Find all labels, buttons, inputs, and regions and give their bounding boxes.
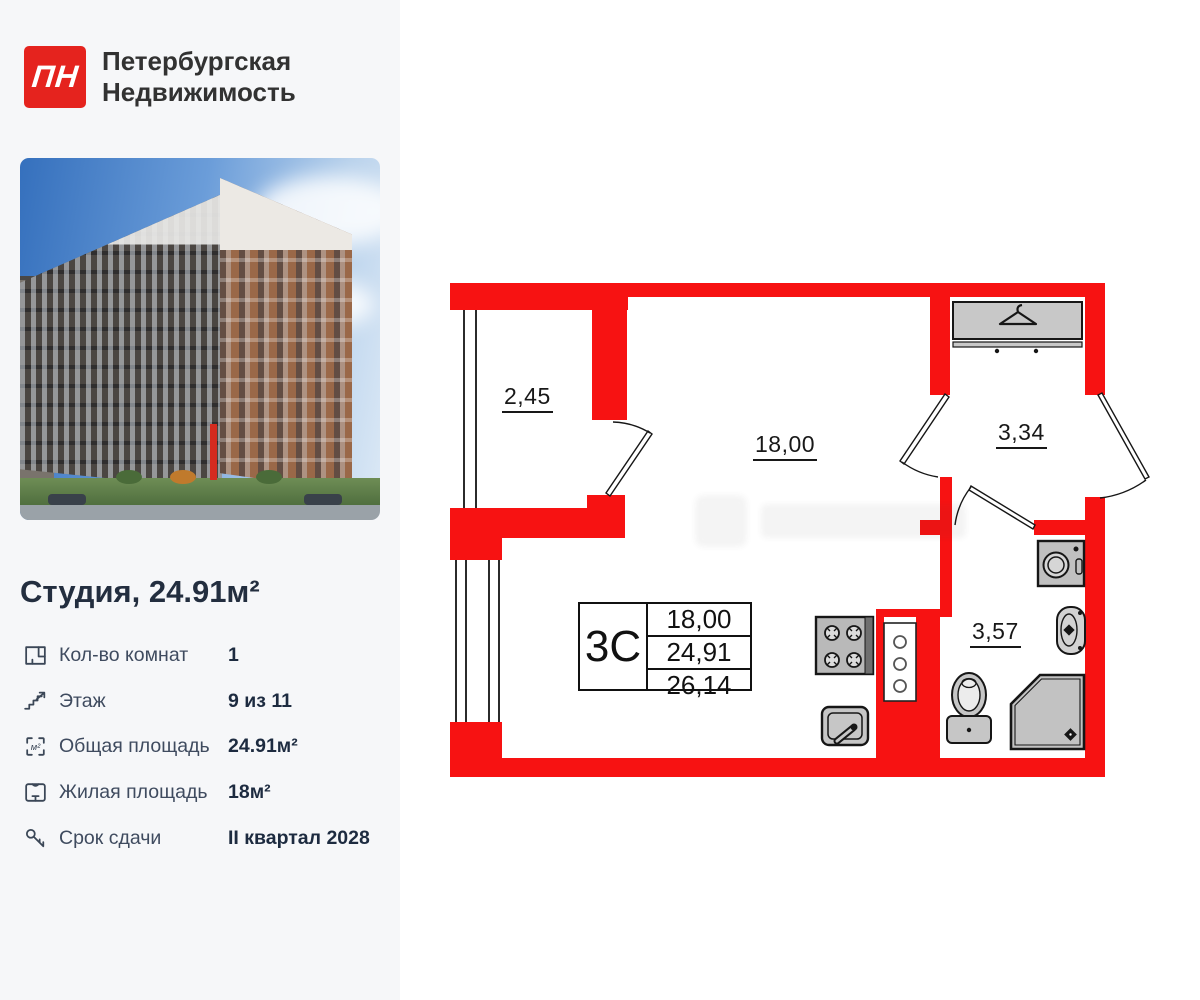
plan-area-living: 18,00 [648, 604, 750, 635]
balcony-door [606, 422, 652, 496]
detail-row-completion: Срок сдачи II квартал 2028 [22, 823, 382, 853]
detail-row-floor: Этаж 9 из 11 [22, 686, 382, 716]
balcony-glazing-window [463, 310, 477, 508]
living-area-icon [22, 779, 49, 806]
company-name: Петербургская Недвижимость [102, 46, 296, 107]
washing-machine [1038, 541, 1084, 586]
listing-card: ПН Петербургская Недвижимость Студия, [0, 0, 1200, 1000]
wall-segment [930, 297, 950, 395]
detail-label: Этаж [59, 690, 106, 713]
wall-segment [916, 617, 940, 777]
wall-segment [592, 310, 627, 420]
hanger-icon [1000, 305, 1036, 324]
shower-cabin [1011, 675, 1084, 749]
detail-label: Жилая площадь [59, 781, 208, 804]
wall-segment [1085, 497, 1105, 777]
left-panel: ПН Петербургская Недвижимость Студия, [0, 0, 400, 1000]
bathroom-sink [1057, 607, 1085, 654]
watermark-text [761, 504, 966, 538]
room-area-label-bath: 3,57 [970, 618, 1021, 648]
kitchen-sink [822, 707, 868, 745]
wall-segment [876, 617, 884, 777]
ventilation-shaft [884, 623, 916, 701]
plan-info-table: 3С 18,00 24,91 26,14 [578, 602, 752, 691]
room-window [488, 560, 500, 722]
brand-header[interactable]: ПН Петербургская Недвижимость [24, 46, 296, 108]
room-window [455, 560, 467, 722]
photo-bush [170, 470, 196, 484]
detail-label: Кол-во комнат [59, 644, 188, 667]
room-area-label-balcony: 2,45 [502, 383, 553, 413]
wall-segment [628, 283, 1105, 297]
detail-value: II квартал 2028 [228, 827, 370, 850]
photo-entrance-sign [210, 424, 217, 480]
apartment-title: Студия, 24.91м² [20, 574, 260, 610]
entrance-door [1098, 393, 1149, 498]
rooms-plan-icon [22, 642, 49, 669]
watermark-logo [695, 495, 747, 547]
logo-monogram: ПН [30, 59, 80, 95]
stove [816, 617, 873, 674]
room-area-label-living: 18,00 [753, 431, 817, 461]
detail-label: Общая площадь [59, 735, 210, 758]
wall-segment [884, 701, 916, 777]
total-area-icon: м² [22, 733, 49, 760]
plan-area-total: 24,91 [648, 635, 750, 668]
plan-area-reduced: 26,14 [648, 668, 750, 701]
wall-segment [1085, 283, 1105, 395]
detail-label: Срок сдачи [59, 827, 161, 850]
company-name-line2: Недвижимость [102, 77, 296, 108]
wall-segment [450, 508, 502, 560]
plan-type-label: 3С [580, 604, 648, 689]
building-photo[interactable] [20, 158, 380, 520]
detail-row-living-area: Жилая площадь 18м² [22, 777, 382, 807]
detail-value: 18м² [228, 781, 271, 804]
wall-segment [450, 283, 628, 310]
hall-door [900, 394, 949, 477]
photo-bush [116, 470, 142, 484]
wall-segment [1034, 520, 1105, 535]
detail-value: 9 из 11 [228, 690, 292, 713]
photo-road [20, 505, 380, 520]
detail-row-rooms: Кол-во комнат 1 [22, 640, 382, 670]
photo-bush [256, 470, 282, 484]
detail-row-total-area: м² Общая площадь 24.91м² [22, 731, 382, 761]
company-name-line1: Петербургская [102, 46, 296, 77]
stairs-icon [22, 688, 49, 715]
room-area-label-hall: 3,34 [996, 419, 1047, 449]
svg-text:м²: м² [31, 742, 41, 752]
detail-value: 24.91м² [228, 735, 298, 758]
watermark [695, 495, 966, 547]
wall-segment [450, 758, 1105, 777]
floor-plan: 2,45 18,00 3,34 3,57 3С 18,00 24,91 26,1… [450, 283, 1160, 783]
key-icon [22, 825, 49, 852]
photo-car [48, 494, 86, 505]
company-logo[interactable]: ПН [24, 46, 86, 108]
bathroom-door [955, 486, 1035, 529]
wardrobe [953, 302, 1082, 353]
wall-segment [876, 609, 940, 617]
detail-value: 1 [228, 644, 239, 667]
toilet [947, 673, 991, 743]
photo-car [304, 494, 342, 505]
